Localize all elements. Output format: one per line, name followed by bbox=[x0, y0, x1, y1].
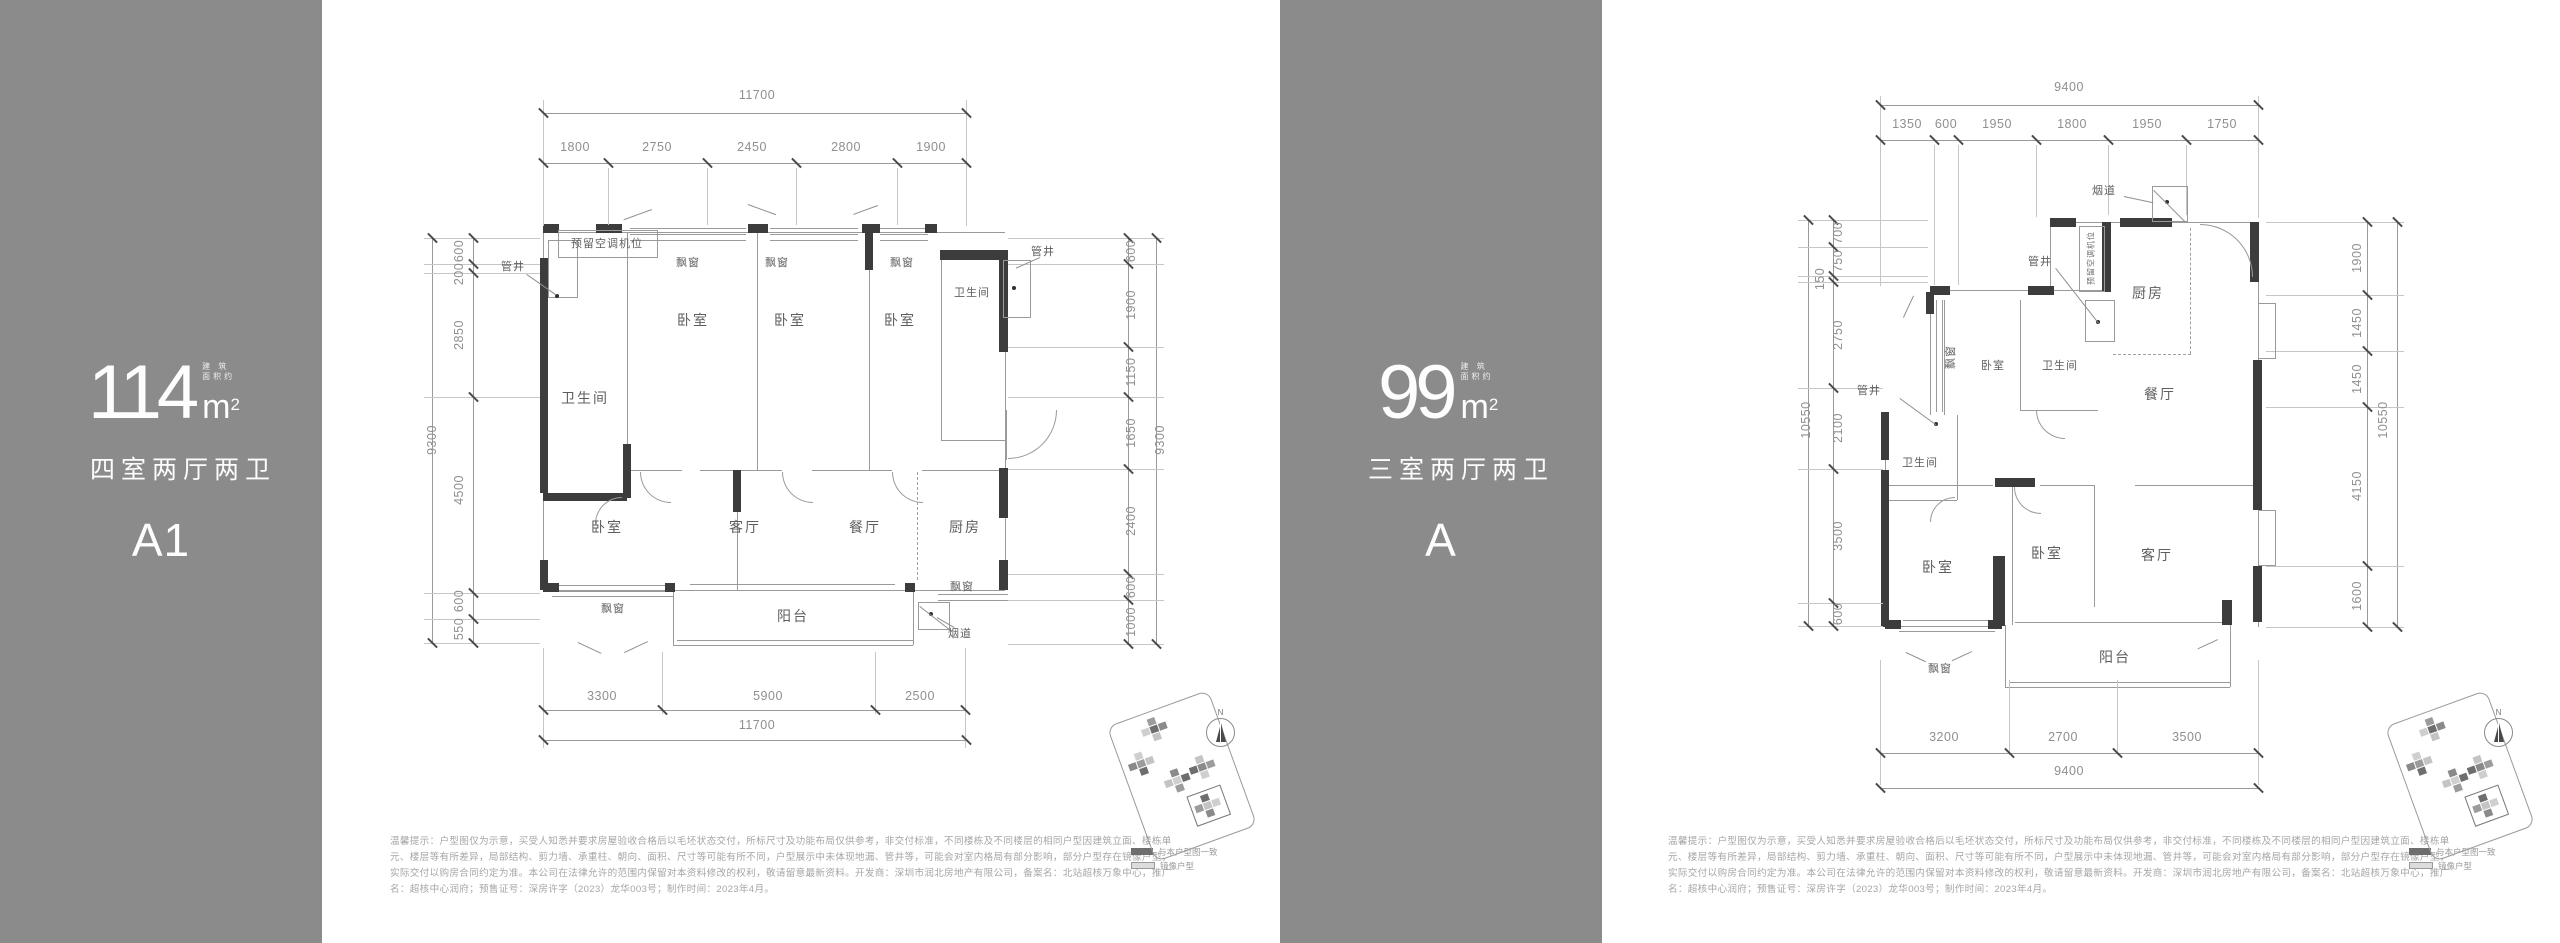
door-arc bbox=[782, 472, 813, 503]
plan-line bbox=[2005, 625, 2006, 687]
dim-extension-line bbox=[1934, 145, 1935, 285]
site-building-unit bbox=[1175, 783, 1185, 792]
dim-extension-line bbox=[1798, 220, 1928, 221]
dim-label: 3200 bbox=[1929, 730, 1959, 744]
fixture-box bbox=[1003, 260, 1031, 318]
area-unit: 建 筑 面积约 m2 bbox=[202, 362, 240, 422]
dim-label: 3500 bbox=[2172, 730, 2202, 744]
wall-segment bbox=[1926, 292, 1934, 314]
plan-line bbox=[1899, 626, 1995, 627]
leader-line bbox=[853, 205, 878, 215]
room-label: 管井 bbox=[2028, 253, 2052, 269]
plan-line bbox=[941, 440, 1005, 441]
site-building-unit bbox=[1181, 773, 1191, 782]
dim-label: 1150 bbox=[1124, 358, 1138, 387]
dim-extension-line bbox=[424, 397, 540, 398]
wall-segment bbox=[2050, 218, 2076, 227]
door-arc bbox=[2014, 487, 2041, 514]
dim-label: 2500 bbox=[905, 689, 935, 703]
compass-needle-split bbox=[1220, 723, 1221, 742]
left-unit-panel: 114 建 筑 面积约 m2 四室两厅两卫 A1 bbox=[0, 0, 322, 943]
dim-label: 600 bbox=[1124, 576, 1138, 598]
dim-label: 2750 bbox=[642, 140, 672, 154]
area-note-line1: 建 筑 bbox=[202, 362, 240, 372]
dim-extension-line bbox=[2108, 145, 2109, 215]
wall-segment bbox=[2028, 286, 2054, 295]
dim-label: 2450 bbox=[737, 140, 767, 154]
unit-code: A bbox=[1280, 513, 1602, 567]
dim-extension-line bbox=[424, 643, 540, 644]
dim-label: 3300 bbox=[587, 689, 617, 703]
unit-m: m bbox=[202, 388, 230, 426]
dim-label: 150 bbox=[1813, 268, 1827, 290]
dim-extension-line bbox=[543, 648, 544, 748]
room-label: 烟道 bbox=[948, 625, 972, 641]
site-building-unit bbox=[1152, 732, 1162, 741]
wall-segment bbox=[543, 583, 559, 592]
site-building-unit bbox=[2453, 783, 2463, 792]
room-label: 飘窗 bbox=[950, 578, 974, 594]
site-building-unit bbox=[2484, 759, 2494, 768]
room-label: 卧室 bbox=[2031, 543, 2063, 563]
dim-extension-line bbox=[1008, 238, 1164, 239]
plan-line bbox=[1899, 631, 1995, 632]
disclaimer-line: 温馨提示：户型图仅为示意，买受人知悉并要求房屋验收合格后以毛坯状态交付，所标尺寸… bbox=[390, 834, 1172, 850]
dim-label: 1750 bbox=[2207, 117, 2237, 131]
shaft-dot bbox=[1012, 286, 1016, 290]
area-unit-m2: m2 bbox=[202, 390, 240, 422]
plan-line bbox=[922, 470, 1005, 471]
room-label: 卫生间 bbox=[954, 284, 990, 300]
legend-label: 镜像户型 bbox=[2438, 860, 2472, 872]
room-label: 卧室 bbox=[1981, 357, 2005, 373]
room-label: 阳台 bbox=[777, 606, 809, 626]
leader-line bbox=[2198, 639, 2218, 649]
plan-line bbox=[552, 591, 674, 592]
dim-label: 1900 bbox=[916, 140, 946, 154]
wall-segment bbox=[925, 224, 937, 233]
plan-line bbox=[2020, 300, 2021, 410]
room-label: 卫生间 bbox=[561, 388, 609, 408]
dim-label: 600 bbox=[452, 590, 466, 612]
site-building-unit bbox=[1145, 756, 1155, 765]
dim-extension-line bbox=[2036, 145, 2037, 217]
right-unit-panel: 99 建 筑 面积约 m2 三室两厅两卫 A bbox=[1280, 0, 1602, 943]
site-building-unit bbox=[1158, 721, 1168, 730]
area-note-line1: 建 筑 bbox=[1461, 362, 1499, 372]
dim-extension-line bbox=[897, 168, 898, 225]
plan-line bbox=[770, 240, 858, 241]
room-label: 客厅 bbox=[729, 517, 761, 537]
dim-label: 4500 bbox=[452, 475, 466, 505]
disclaimer-line: 名：超核中心润府；预售证号：深房许字（2023）龙华003号；制作时间：2023… bbox=[390, 882, 1172, 898]
leader-line bbox=[1906, 652, 1926, 662]
dim-extension-line bbox=[1008, 574, 1164, 575]
unit-m: m bbox=[1461, 388, 1489, 426]
dim-label: 1650 bbox=[1124, 418, 1138, 448]
dim-label: 3500 bbox=[1831, 521, 1845, 551]
room-label: 卧室 bbox=[884, 310, 916, 330]
site-building-unit bbox=[2417, 767, 2427, 776]
dim-extension-line bbox=[1008, 397, 1164, 398]
site-highlight-box bbox=[2464, 784, 2509, 826]
plan-line bbox=[757, 232, 758, 470]
room-label: 飘窗 bbox=[1928, 660, 1952, 676]
disclaimer-line: 实际交付以购房合同约定为准。本公司在法律允许的范围内保留对本资料修改的权利，敬请… bbox=[1668, 866, 2450, 882]
dim-extension-line bbox=[1798, 247, 1928, 248]
door-arc bbox=[2036, 410, 2065, 439]
plan-line bbox=[1957, 415, 1958, 500]
dim-label: 2400 bbox=[1124, 506, 1138, 536]
dim-label: 2800 bbox=[831, 140, 861, 154]
site-highlight-box bbox=[1186, 784, 1231, 826]
dim-label: 1900 bbox=[2350, 243, 2364, 273]
area-unit-m2: m2 bbox=[1461, 390, 1499, 422]
room-label: 预留空调机位 bbox=[2086, 231, 2097, 285]
plan-line bbox=[1006, 410, 1007, 460]
dim-label: 10550 bbox=[2376, 401, 2390, 438]
dim-extension-line bbox=[424, 238, 540, 239]
leader-line bbox=[624, 641, 648, 653]
room-label: 飘窗 bbox=[765, 254, 789, 270]
plan-line bbox=[770, 234, 858, 235]
dim-extension-line bbox=[1008, 600, 1164, 601]
unit-layout-text: 四室两厅两卫 bbox=[90, 450, 276, 486]
dim-extension-line bbox=[707, 168, 708, 225]
plan-line bbox=[556, 585, 672, 586]
disclaimer-left: 温馨提示：户型图仅为示意，买受人知悉并要求房屋验收合格后以毛坯状态交付，所标尺寸… bbox=[390, 834, 1172, 898]
legend-swatch-outline bbox=[2409, 862, 2433, 869]
room-label: 管井 bbox=[501, 258, 525, 274]
compass-needle bbox=[2494, 723, 2504, 742]
legend-item-mirror: 镜像户型 bbox=[1131, 860, 1218, 871]
wall-segment bbox=[623, 444, 631, 498]
plan-line bbox=[690, 584, 895, 585]
dim-label: 2850 bbox=[452, 320, 466, 350]
dim-label: 9300 bbox=[425, 425, 439, 455]
dim-label: 2100 bbox=[1831, 413, 1845, 443]
plan-line bbox=[543, 740, 966, 741]
dim-label: 1600 bbox=[2350, 581, 2364, 611]
unit-sup: 2 bbox=[1489, 395, 1498, 414]
room-label: 阳台 bbox=[2099, 647, 2131, 667]
room-label: 管井 bbox=[1857, 382, 1881, 398]
wall-segment bbox=[1995, 478, 2035, 487]
dim-label: 2700 bbox=[2048, 730, 2078, 744]
compass-north-label: N bbox=[1218, 708, 1224, 717]
dim-label: 600 bbox=[1124, 240, 1138, 262]
wall-segment bbox=[540, 258, 548, 493]
plan-line bbox=[880, 240, 928, 241]
dim-extension-line bbox=[1880, 660, 1881, 785]
site-building-unit bbox=[1200, 770, 1210, 779]
dim-label: 600 bbox=[452, 240, 466, 262]
dim-extension-line bbox=[2117, 680, 2118, 755]
plan-line bbox=[941, 255, 942, 440]
dim-extension-line bbox=[662, 652, 663, 714]
plan-line bbox=[630, 228, 746, 229]
plan-line bbox=[880, 228, 928, 229]
disclaimer-line: 名：超核中心润府；预售证号：深房许字（2023）龙华003号；制作时间：2023… bbox=[1668, 882, 2450, 898]
area-figure: 114 建 筑 面积约 m2 bbox=[88, 358, 240, 428]
plan-line bbox=[552, 596, 674, 597]
dim-extension-line bbox=[424, 619, 540, 620]
dim-extension-line bbox=[424, 593, 540, 594]
fixture-box bbox=[2258, 510, 2276, 566]
dim-label: 11700 bbox=[739, 718, 775, 732]
plan-line bbox=[880, 234, 928, 235]
dim-label: 11700 bbox=[739, 88, 775, 102]
dim-label: 4150 bbox=[2350, 471, 2364, 501]
room-label: 卧室 bbox=[591, 517, 623, 537]
plan-line bbox=[1880, 105, 2258, 106]
wall-segment bbox=[940, 250, 1008, 260]
dim-extension-line bbox=[965, 648, 966, 748]
room-label: 卧室 bbox=[1922, 557, 1954, 577]
compass-north-label: N bbox=[2496, 708, 2502, 717]
wall-segment bbox=[748, 224, 768, 233]
compass-needle-split bbox=[2498, 723, 2499, 742]
dim-extension-line bbox=[1008, 469, 1164, 470]
wall-segment bbox=[999, 560, 1008, 590]
dim-label: 1000 bbox=[1124, 607, 1138, 637]
dim-extension-line bbox=[1008, 347, 1164, 348]
room-label: 管井 bbox=[1031, 243, 1055, 259]
compass-needle bbox=[1216, 723, 1226, 742]
plan-line bbox=[2040, 485, 2095, 486]
wall-segment bbox=[665, 583, 675, 592]
disclaimer-right: 温馨提示：户型图仅为示意，买受人知悉并要求房屋验收合格后以毛坯状态交付，所标尺寸… bbox=[1668, 834, 2450, 898]
dim-extension-line bbox=[2266, 566, 2404, 567]
plan-line bbox=[543, 710, 966, 711]
dashed-line bbox=[2113, 354, 2191, 356]
fixture-box bbox=[2258, 303, 2276, 359]
plan-line bbox=[2135, 485, 2258, 486]
dim-label: 9400 bbox=[2054, 80, 2084, 94]
unit-sup: 2 bbox=[231, 395, 240, 414]
dim-extension-line bbox=[608, 168, 609, 225]
legend-swatch-solid bbox=[2409, 848, 2431, 855]
dim-extension-line bbox=[2266, 222, 2404, 223]
plan-line bbox=[2009, 682, 2230, 683]
unit-layout-text: 三室两厅两卫 bbox=[1368, 450, 1554, 486]
dim-extension-line bbox=[1008, 264, 1164, 265]
dim-label: 200 bbox=[452, 263, 466, 285]
plan-line bbox=[673, 588, 674, 645]
leader-line bbox=[578, 642, 602, 654]
area-figure: 99 建 筑 面积约 m2 bbox=[1378, 358, 1498, 428]
wall-segment bbox=[865, 232, 873, 270]
plan-line bbox=[2015, 622, 2225, 623]
plan-line bbox=[913, 588, 914, 645]
site-building-cluster bbox=[2416, 714, 2450, 746]
plan-line bbox=[1936, 300, 1937, 412]
dim-label: 600 bbox=[1831, 603, 1845, 625]
dim-label: 1450 bbox=[2350, 308, 2364, 338]
plan-line bbox=[473, 238, 474, 643]
dim-label: 1800 bbox=[560, 140, 590, 154]
site-building-unit bbox=[2423, 756, 2433, 765]
plan-line bbox=[2094, 485, 2095, 607]
plan-line bbox=[1885, 485, 1993, 486]
room-label: 厨房 bbox=[2132, 283, 2164, 303]
room-label: 卧室 bbox=[774, 310, 806, 330]
dashed-line bbox=[2190, 228, 2192, 354]
plan-line bbox=[1903, 620, 1991, 621]
dim-label: 700 bbox=[1831, 222, 1845, 244]
dim-extension-line bbox=[2266, 351, 2404, 352]
plan-line bbox=[770, 228, 858, 229]
room-label: 飘窗 bbox=[676, 254, 700, 270]
plan-line bbox=[2230, 625, 2231, 687]
door-arc bbox=[1008, 410, 1057, 459]
dim-label: 1900 bbox=[1124, 290, 1138, 320]
leader-line bbox=[2124, 196, 2154, 203]
legend-swatch-solid bbox=[1131, 848, 1153, 855]
dim-extension-line bbox=[2009, 680, 2010, 755]
dim-extension-line bbox=[796, 168, 797, 225]
dim-extension-line bbox=[875, 652, 876, 714]
room-label: 客厅 bbox=[2141, 545, 2173, 565]
wall-segment bbox=[1881, 412, 1889, 460]
room-label: 预留空调机位 bbox=[571, 235, 643, 251]
plan-line bbox=[812, 470, 892, 471]
dim-label: 10550 bbox=[1799, 401, 1813, 438]
disclaimer-line: 元、楼层等有所差异，局部结构、剪力墙、承重柱、朝向、面积、尺寸等可能有所不同，户… bbox=[390, 850, 1172, 866]
dim-label: 1350 bbox=[1892, 117, 1922, 131]
room-label: 餐厅 bbox=[2144, 384, 2176, 404]
room-label: 飘窗 bbox=[601, 600, 625, 616]
plan-line bbox=[700, 470, 782, 471]
unit-code: A1 bbox=[0, 513, 322, 567]
site-building-unit bbox=[2478, 770, 2488, 779]
leader-line bbox=[1903, 296, 1914, 318]
site-building-unit bbox=[1206, 759, 1216, 768]
floorplan-poster: 114 建 筑 面积约 m2 四室两厅两卫 A1 99 建 筑 面积约 m2 三… bbox=[0, 0, 2560, 943]
site-building-unit bbox=[2430, 732, 2440, 741]
wall-segment bbox=[543, 224, 559, 233]
room-label: 飘窗 bbox=[1942, 345, 1958, 369]
site-building-unit bbox=[2436, 721, 2446, 730]
dim-extension-line bbox=[1798, 469, 1883, 470]
wall-segment bbox=[999, 468, 1008, 518]
compass-icon: N bbox=[1206, 718, 1235, 747]
room-label: 卧室 bbox=[677, 310, 709, 330]
dim-label: 1950 bbox=[1982, 117, 2012, 131]
compass-icon: N bbox=[2484, 718, 2513, 747]
disclaimer-line: 实际交付以购房合同约定为准。本公司在法律允许的范围内保留对本资料修改的权利，敬请… bbox=[390, 866, 1172, 882]
site-building-unit bbox=[1139, 767, 1149, 776]
plan-line bbox=[938, 594, 1008, 595]
room-label: 厨房 bbox=[949, 517, 981, 537]
leader-line bbox=[623, 209, 652, 220]
site-building-cluster bbox=[2403, 748, 2437, 780]
plan-line bbox=[677, 640, 913, 641]
room-label: 卫生间 bbox=[1902, 454, 1938, 470]
dim-extension-line bbox=[2258, 96, 2259, 218]
disclaimer-line: 元、楼层等有所差异，局部结构、剪力墙、承重柱、朝向、面积、尺寸等可能有所不同，户… bbox=[1668, 850, 2450, 866]
dim-extension-line bbox=[1880, 96, 1881, 286]
dim-extension-line bbox=[2258, 660, 2259, 785]
door-arc bbox=[892, 472, 923, 503]
dim-extension-line bbox=[1008, 644, 1164, 645]
area-number: 114 bbox=[88, 358, 194, 428]
door-arc bbox=[2200, 224, 2253, 277]
dim-extension-line bbox=[2266, 627, 2404, 628]
area-number: 99 bbox=[1378, 358, 1453, 428]
legend-item-mirror: 镜像户型 bbox=[2409, 860, 2496, 871]
leader-line bbox=[748, 204, 777, 215]
area-unit: 建 筑 面积约 m2 bbox=[1461, 362, 1499, 422]
dim-label: 550 bbox=[452, 618, 466, 640]
dim-label: 5900 bbox=[753, 689, 783, 703]
dim-extension-line bbox=[1958, 145, 1959, 285]
fixture-box bbox=[2085, 300, 2115, 342]
room-label: 烟道 bbox=[2092, 182, 2116, 198]
plan-line bbox=[673, 645, 913, 646]
plan-line bbox=[627, 470, 682, 471]
wall-segment bbox=[2253, 360, 2262, 510]
dim-label: 1800 bbox=[2057, 117, 2087, 131]
dim-label: 2750 bbox=[1831, 320, 1845, 350]
fixture-box bbox=[2152, 186, 2188, 222]
wall-segment bbox=[1885, 620, 1901, 629]
area-note-line2: 面积约 bbox=[1461, 372, 1499, 382]
room-label: 飘窗 bbox=[890, 254, 914, 270]
dim-label: 750 bbox=[1831, 250, 1845, 272]
room-label: 餐厅 bbox=[849, 517, 881, 537]
wall-segment bbox=[733, 470, 741, 512]
plan-line bbox=[1880, 788, 2258, 789]
dim-label: 9300 bbox=[1153, 425, 1167, 455]
plan-line bbox=[2012, 485, 2013, 625]
site-building-unit bbox=[2459, 773, 2469, 782]
site-building-cluster bbox=[1138, 714, 1172, 746]
dim-label: 9400 bbox=[2054, 764, 2084, 778]
disclaimer-line: 温馨提示：户型图仅为示意，买受人知悉并要求房屋验收合格后以毛坯状态交付，所标尺寸… bbox=[1668, 834, 2450, 850]
wall-segment bbox=[2253, 566, 2262, 622]
leader-line bbox=[1952, 651, 1972, 661]
room-label: 卫生间 bbox=[2042, 357, 2078, 373]
legend-label: 镜像户型 bbox=[1160, 860, 1194, 872]
plan-line bbox=[1880, 753, 2258, 754]
plan-line bbox=[938, 600, 1008, 601]
dim-label: 1450 bbox=[2350, 364, 2364, 394]
dim-label: 1950 bbox=[2132, 117, 2162, 131]
legend-swatch-outline bbox=[1131, 862, 1155, 869]
wall-segment bbox=[1993, 556, 2005, 626]
dim-extension-line bbox=[2266, 295, 2404, 296]
plan-line bbox=[543, 113, 966, 114]
wall-segment bbox=[905, 583, 915, 592]
door-arc bbox=[640, 472, 671, 503]
dim-label: 600 bbox=[1935, 117, 1957, 131]
area-note-line2: 面积约 bbox=[202, 372, 240, 382]
site-building-cluster bbox=[1125, 748, 1159, 780]
wall-segment bbox=[2222, 600, 2232, 625]
